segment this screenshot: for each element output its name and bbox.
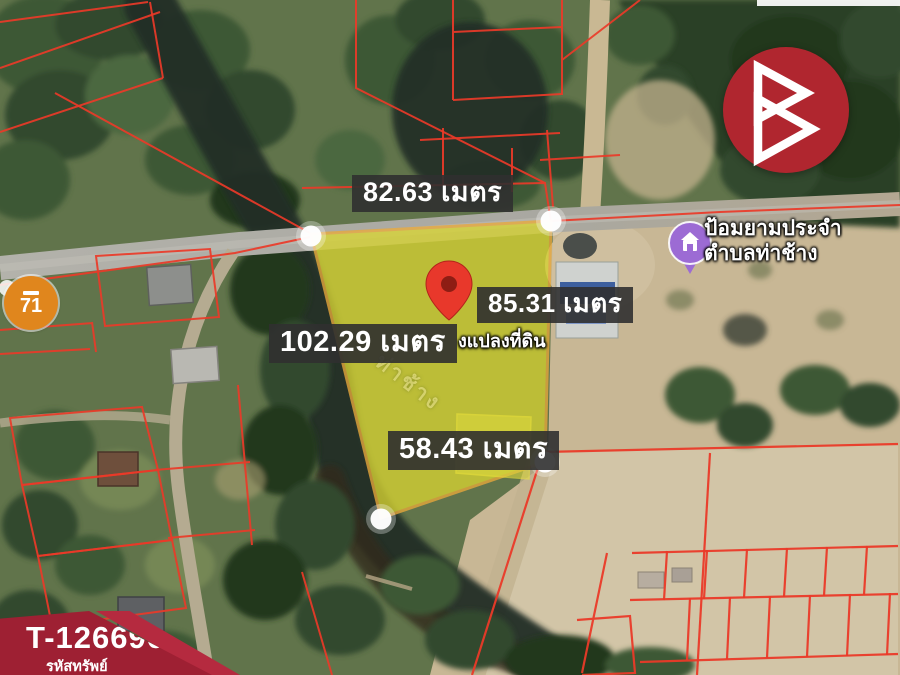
house [98, 452, 138, 486]
poi-name-line1: ป้อมยามประจำ [704, 216, 842, 241]
white-dot [536, 206, 566, 236]
white-dot [296, 221, 326, 251]
poi-name-line2: ตำบลท่าช้าง [704, 241, 842, 266]
shed [672, 568, 692, 582]
house [147, 265, 194, 306]
route-71-shield: 71 [4, 276, 58, 330]
measurement-label-top: 82.63 เมตร [352, 175, 513, 212]
house [171, 346, 219, 383]
shield-ornament [23, 291, 39, 295]
brand-logo [722, 46, 850, 174]
property-code-caption: รหัสทรัพย์ [46, 655, 108, 675]
measurement-label-left: 102.29 เมตร [269, 324, 457, 363]
plot-caption-text: งแปลงที่ดิน [458, 326, 546, 355]
route-number: 71 [20, 296, 42, 316]
poi-name-label: ป้อมยามประจำ ตำบลท่าช้าง [704, 216, 842, 266]
white-dot [366, 504, 396, 534]
shed [638, 572, 664, 588]
measurement-label-bottom: 58.43 เมตร [388, 431, 559, 470]
measurement-label-right: 85.31 เมตร [477, 287, 633, 323]
top-white-bar [757, 0, 900, 6]
land-listing-map-image: ท่าช้าง งแปลงที่ดิน 82.63 เมตร 85.31 เมต… [0, 0, 900, 675]
pond [392, 22, 548, 198]
round-structure [563, 233, 597, 259]
